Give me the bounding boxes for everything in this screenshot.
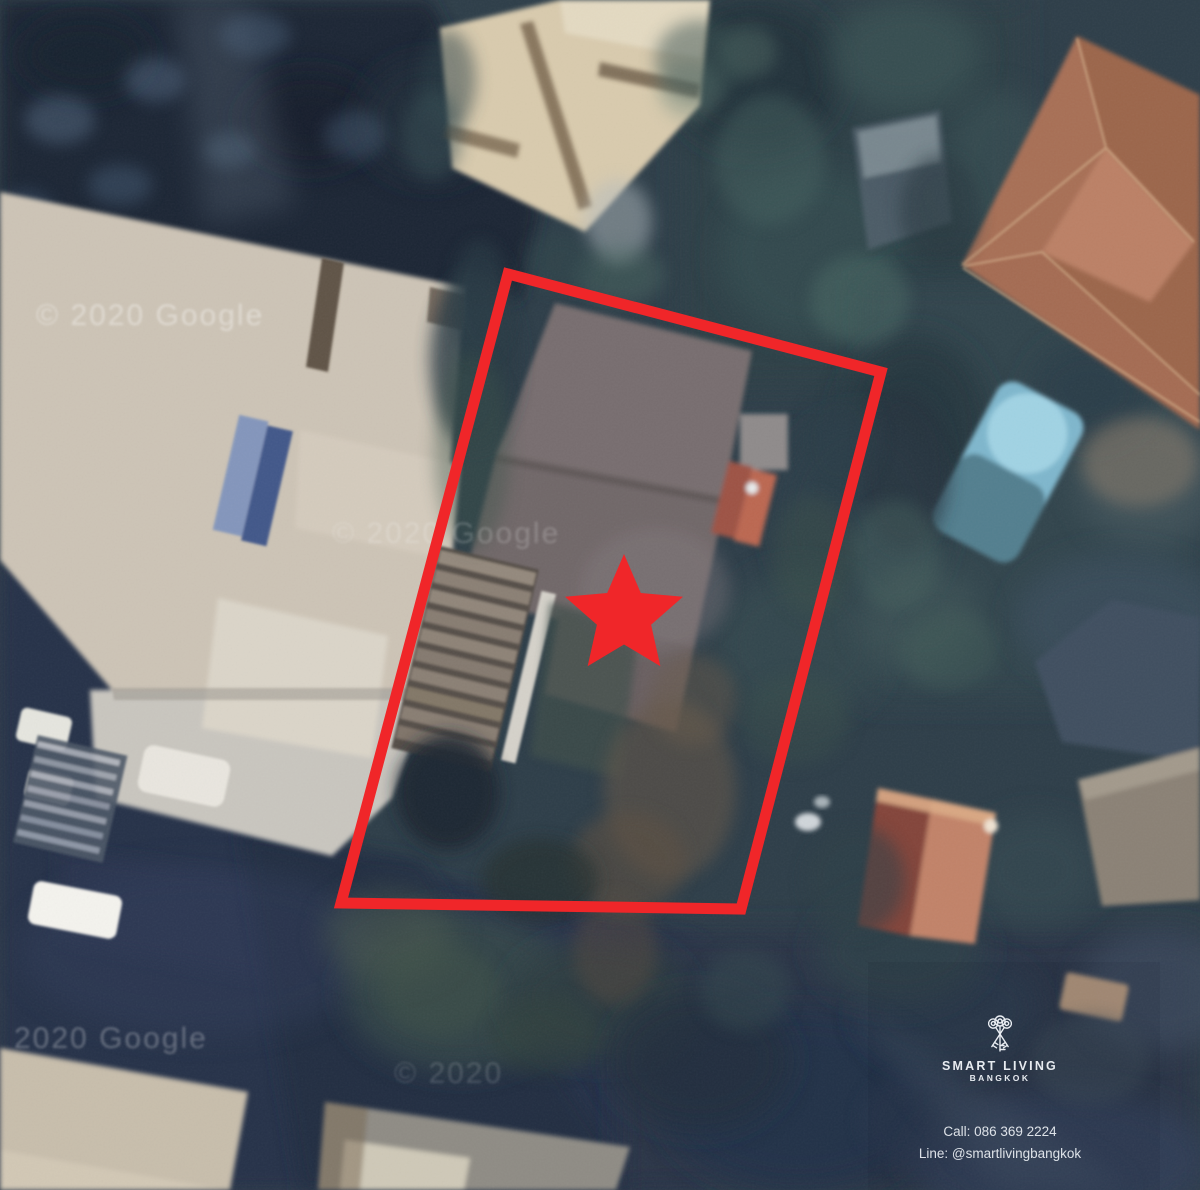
svg-text:BANGKOK: BANGKOK bbox=[970, 1073, 1031, 1083]
svg-text:Line: @smartlivingbangkok: Line: @smartlivingbangkok bbox=[919, 1146, 1082, 1161]
svg-text:Call: 086 369 2224: Call: 086 369 2224 bbox=[943, 1124, 1057, 1139]
svg-text:SMART LIVING: SMART LIVING bbox=[942, 1059, 1058, 1073]
